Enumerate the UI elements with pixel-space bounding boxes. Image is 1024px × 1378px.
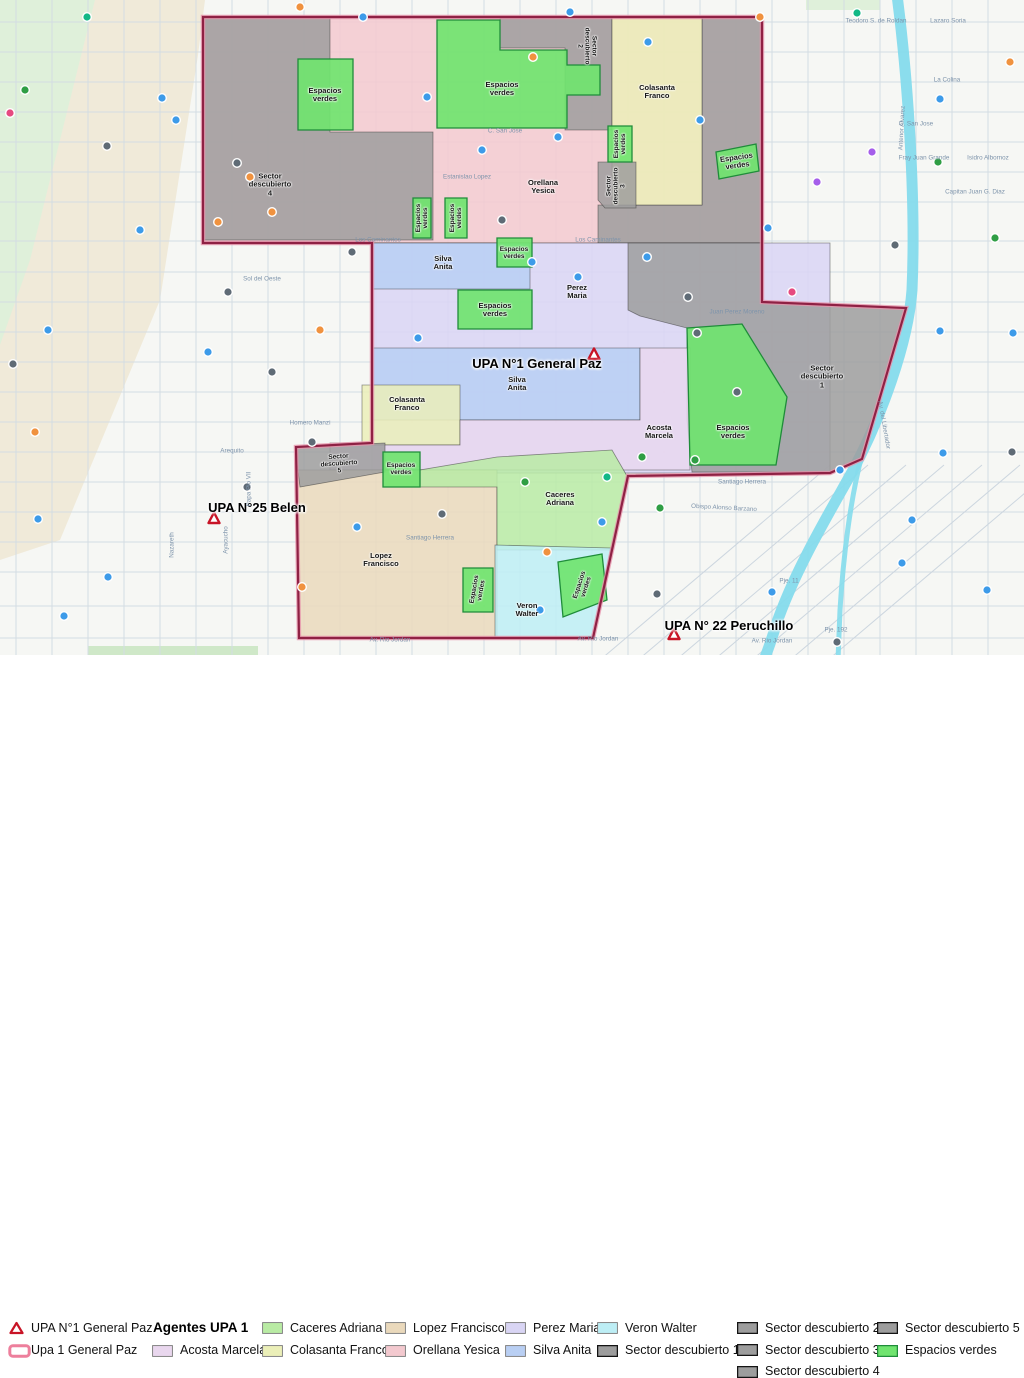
region-sector-descubierto-3 [598, 162, 636, 208]
poi-marker [83, 13, 92, 22]
poi-marker [603, 473, 612, 482]
swatch-sector-2 [738, 1323, 758, 1334]
swatch-sector-5 [878, 1323, 898, 1334]
poi-marker [233, 159, 242, 168]
poi-marker [908, 516, 917, 525]
poi-marker [836, 466, 845, 475]
legend-sector-5: Sector descubierto 5 [905, 1321, 1020, 1335]
poi-marker [733, 388, 742, 397]
region-espacios-verdes [383, 452, 420, 487]
swatch-colasanta [263, 1346, 283, 1357]
legend-agent-veron: Veron Walter [625, 1321, 697, 1335]
poi-marker [574, 273, 583, 282]
poi-marker [9, 360, 18, 369]
region-espacios-verdes [497, 238, 532, 267]
legend-agent-perez: Perez Maria [533, 1321, 600, 1335]
poi-marker [224, 288, 233, 297]
poi-marker [756, 13, 765, 22]
poi-marker [598, 518, 607, 527]
poi-marker [768, 588, 777, 597]
poi-marker [243, 483, 252, 492]
region-espacios-verdes [608, 126, 632, 162]
poi-marker [891, 241, 900, 250]
poi-marker [643, 253, 652, 262]
swatch-perez [506, 1323, 526, 1334]
poi-marker [60, 612, 69, 621]
poi-marker [478, 146, 487, 155]
poi-marker [934, 158, 943, 167]
region-espacios-verdes [458, 290, 532, 329]
legend-agent-colasanta: Colasanta Franco [290, 1343, 389, 1357]
poi-marker [204, 348, 213, 357]
poi-marker [214, 218, 223, 227]
legend-agents-header: Agentes UPA 1 [153, 1321, 248, 1335]
poi-marker [298, 583, 307, 592]
poi-marker [788, 288, 797, 297]
swatch-caceres [263, 1323, 283, 1334]
poi-marker [521, 478, 530, 487]
upa-point-legend-icon [9, 1321, 24, 1335]
poi-marker [644, 38, 653, 47]
swatch-acosta [153, 1346, 173, 1357]
legend: UPA N°1 General Paz Upa 1 General Paz Ag… [0, 655, 1024, 724]
legend-upa-area-label: Upa 1 General Paz [31, 1343, 137, 1357]
swatch-silva [506, 1346, 526, 1357]
legend-agent-lopez: Lopez Francisco [413, 1321, 505, 1335]
region-espacios-verdes [298, 59, 353, 130]
poi-marker [528, 258, 537, 267]
legend-sector-4: Sector descubierto 4 [765, 1364, 880, 1378]
poi-marker [529, 53, 538, 62]
upa-area-legend-icon [8, 1344, 31, 1358]
legend-agent-silva: Silva Anita [533, 1343, 591, 1357]
poi-marker [348, 248, 357, 257]
terrain-park-n [806, 0, 880, 10]
poi-marker [1008, 448, 1017, 457]
poi-marker [691, 456, 700, 465]
legend-sector-2: Sector descubierto 2 [765, 1321, 880, 1335]
poi-marker [158, 94, 167, 103]
poi-marker [268, 208, 277, 217]
poi-marker [983, 586, 992, 595]
region-colasanta-franco-south [362, 385, 460, 445]
poi-marker [31, 428, 40, 437]
legend-upa-point-label: UPA N°1 General Paz [31, 1321, 153, 1335]
poi-marker [438, 510, 447, 519]
poi-marker [543, 548, 552, 557]
poi-marker [21, 86, 30, 95]
poi-marker [554, 133, 563, 142]
poi-marker [653, 590, 662, 599]
swatch-sector-3 [738, 1345, 758, 1356]
poi-marker [638, 453, 647, 462]
poi-marker [359, 13, 368, 22]
poi-marker [316, 326, 325, 335]
poi-marker [656, 504, 665, 513]
region-lopez-francisco [296, 470, 497, 638]
swatch-orellana [386, 1346, 406, 1357]
poi-marker [853, 9, 862, 18]
legend-agent-caceres: Caceres Adriana [290, 1321, 382, 1335]
poi-marker [104, 573, 113, 582]
legend-sector-3: Sector descubierto 3 [765, 1343, 880, 1357]
poi-marker [353, 523, 362, 532]
swatch-sector-4 [738, 1367, 758, 1378]
legend-agent-acosta: Acosta Marcela [180, 1343, 266, 1357]
poi-marker [1009, 329, 1018, 338]
poi-marker [423, 93, 432, 102]
area-swatch [10, 1346, 29, 1356]
map-svg [0, 0, 1024, 655]
legend-agent-orellana: Orellana Yesica [413, 1343, 500, 1357]
region-espacios-verdes [445, 198, 467, 238]
poi-marker [898, 559, 907, 568]
poi-marker [414, 334, 423, 343]
poi-marker [268, 368, 277, 377]
poi-marker [936, 327, 945, 336]
poi-marker [868, 148, 877, 157]
legend-espacios: Espacios verdes [905, 1343, 997, 1357]
poi-marker [44, 326, 53, 335]
poi-marker [308, 438, 317, 447]
poi-marker [34, 515, 43, 524]
region-espacios-verdes [413, 198, 431, 238]
poi-marker [813, 178, 822, 187]
poi-marker [696, 116, 705, 125]
poi-marker [684, 293, 693, 302]
poi-marker [536, 606, 545, 615]
poi-marker [764, 224, 773, 233]
poi-marker [991, 234, 1000, 243]
poi-marker [6, 109, 15, 118]
swatch-lopez [386, 1323, 406, 1334]
legend-sector-1: Sector descubierto 1 [625, 1343, 740, 1357]
poi-marker [566, 8, 575, 17]
poi-marker [498, 216, 507, 225]
region-espacios-verdes [463, 568, 493, 612]
poi-marker [172, 116, 181, 125]
poi-marker [296, 3, 305, 12]
poi-marker [246, 173, 255, 182]
poi-marker [939, 449, 948, 458]
poi-marker [136, 226, 145, 235]
swatch-espacios [878, 1346, 898, 1357]
poi-marker [103, 142, 112, 151]
swatch-veron [598, 1323, 618, 1334]
triangle-icon [11, 1323, 23, 1333]
map-canvas: Sector descubierto 4Espacios verdesEspac… [0, 0, 1024, 655]
swatch-sector-1 [598, 1346, 618, 1357]
poi-marker [693, 329, 702, 338]
poi-marker [936, 95, 945, 104]
poi-marker [833, 638, 842, 647]
poi-marker [1006, 58, 1015, 67]
